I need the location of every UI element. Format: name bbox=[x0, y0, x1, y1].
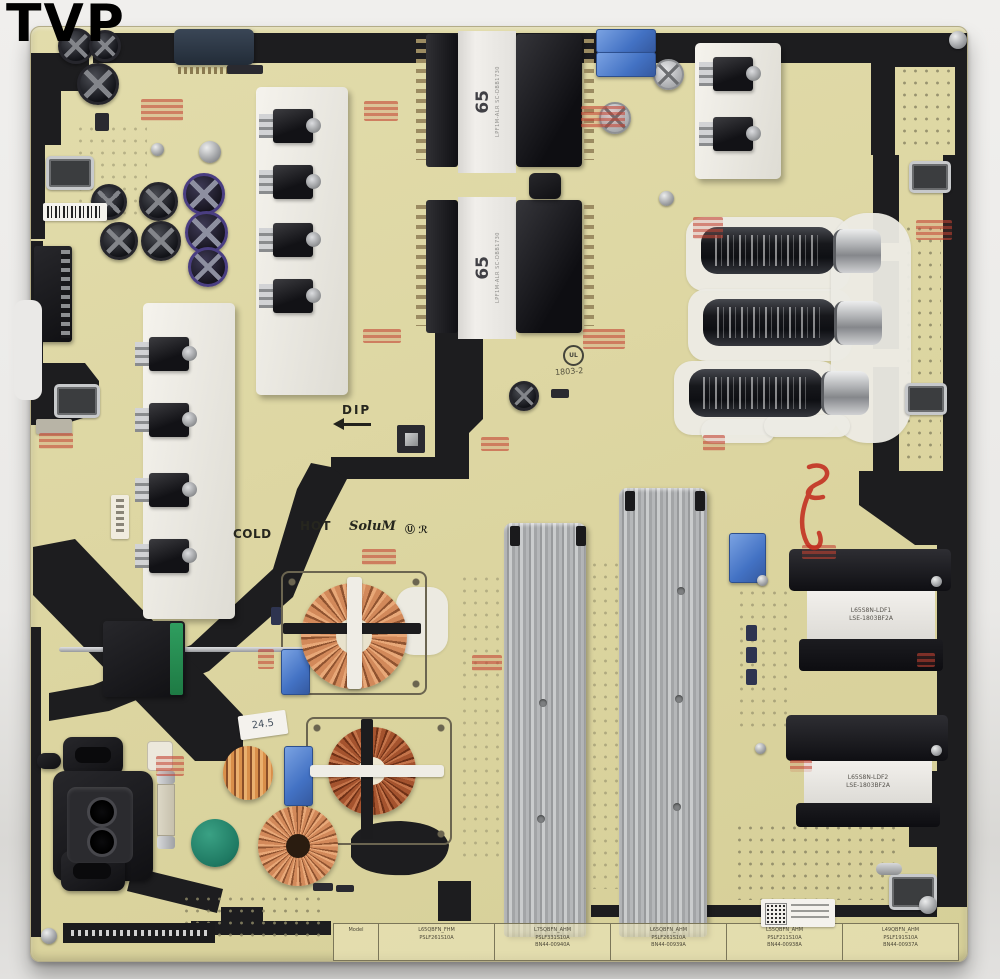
transformer-core bbox=[796, 803, 940, 827]
transformer-pins bbox=[584, 205, 594, 326]
watermark-text: TVP bbox=[6, 0, 126, 54]
qc-stamp bbox=[141, 99, 183, 121]
barcode-label bbox=[43, 203, 107, 221]
metal-clip bbox=[54, 384, 100, 418]
mounting-screw bbox=[949, 31, 967, 49]
electrolytic-capacitor bbox=[139, 182, 178, 221]
transistor-body bbox=[713, 57, 753, 91]
metal-clip bbox=[46, 156, 94, 190]
transistor-legs bbox=[259, 114, 273, 138]
transistor-body bbox=[149, 539, 189, 573]
metal-clip bbox=[909, 161, 951, 193]
sticker-text: 24.5 bbox=[251, 718, 275, 732]
qc-stamp bbox=[481, 437, 509, 451]
heatsink-hole bbox=[539, 699, 547, 707]
heatsink bbox=[619, 488, 707, 937]
optocoupler-window bbox=[405, 433, 418, 446]
ac-inlet-slot bbox=[75, 747, 111, 763]
date-stamp bbox=[111, 495, 129, 539]
capacitor-silver-end bbox=[834, 301, 882, 345]
component-column bbox=[736, 587, 792, 727]
qr-code bbox=[765, 903, 787, 925]
transformer-label-line: LSE-1803BF2A bbox=[846, 782, 890, 790]
film-capacitor-blue bbox=[596, 52, 656, 77]
mount-pad bbox=[659, 191, 674, 206]
gray-label bbox=[36, 419, 72, 434]
transformer-core bbox=[426, 34, 458, 167]
transformer-label-line: L65S8N-LDF2 bbox=[848, 774, 889, 782]
barcode bbox=[47, 206, 103, 218]
qc-stamp bbox=[364, 101, 398, 121]
filter-capacitor-horizontal bbox=[703, 299, 836, 346]
model-code: L75QBFN_AHM bbox=[495, 927, 610, 935]
transistor bbox=[135, 473, 193, 507]
heatsink-fin-tip bbox=[510, 526, 520, 546]
fuse-glass bbox=[157, 784, 175, 836]
table-cell: L75QBFN_AHM PSLF331S10A BN44-00940A bbox=[494, 924, 610, 960]
toroid-center bbox=[286, 834, 310, 858]
transistor-screw bbox=[182, 346, 197, 361]
connector-teeth bbox=[61, 250, 70, 338]
transistor-body bbox=[273, 223, 313, 257]
qc-stamp bbox=[39, 433, 73, 449]
stamp-marks bbox=[116, 499, 124, 535]
transformer-core bbox=[516, 200, 582, 333]
table-tag-cell: Model bbox=[334, 924, 378, 960]
glue-blob bbox=[764, 415, 850, 437]
qc-stamp bbox=[581, 106, 625, 128]
solder-pad-grid bbox=[899, 65, 955, 149]
smd-resistor bbox=[746, 625, 757, 641]
transistor-screw bbox=[182, 482, 197, 497]
transistor-legs bbox=[135, 342, 149, 366]
main-transformer: 65 LPF1M-ALR SC-DBB1730 bbox=[416, 31, 594, 173]
transistor-body bbox=[149, 337, 189, 371]
transformer-part-text: LPF1M-ALR SC-DBB1730 bbox=[495, 66, 501, 137]
transformer-pins bbox=[416, 205, 426, 326]
metal-clip bbox=[905, 383, 947, 415]
heatsink-hole bbox=[537, 815, 545, 823]
bn-code: BN44-00939A bbox=[611, 942, 726, 950]
component-column bbox=[589, 559, 619, 889]
transistor bbox=[135, 539, 193, 573]
qc-stamp bbox=[362, 549, 396, 565]
diode bbox=[313, 883, 333, 891]
signal-connector bbox=[174, 29, 254, 65]
transistor-legs bbox=[699, 122, 713, 146]
electrolytic-capacitor bbox=[100, 222, 138, 260]
qc-stamp bbox=[790, 760, 812, 772]
transformer-bobbin: 65 LPF1M-ALR SC-DBB1730 bbox=[458, 31, 516, 173]
transistor-legs bbox=[699, 62, 713, 86]
transistor-legs bbox=[259, 170, 273, 194]
transformer-number: 65 bbox=[473, 256, 493, 280]
heatsink-fin-tip bbox=[576, 526, 586, 546]
fuse-cap bbox=[157, 836, 175, 849]
cable-tie bbox=[347, 577, 362, 689]
small-transistor bbox=[95, 113, 109, 131]
bn-code: BN44-00938A bbox=[727, 942, 842, 950]
transistor bbox=[259, 109, 317, 143]
qc-stamp bbox=[583, 329, 625, 349]
qc-stamp bbox=[258, 649, 274, 669]
transistor-body bbox=[273, 279, 313, 313]
transistor-screw bbox=[746, 66, 761, 81]
filter-capacitor-horizontal bbox=[689, 369, 823, 417]
transformer-screw bbox=[931, 745, 942, 756]
board-edge-notch bbox=[14, 300, 42, 400]
ac-inlet-slot bbox=[73, 863, 111, 879]
transistor-body bbox=[713, 117, 753, 151]
transistor-screw bbox=[182, 412, 197, 427]
transistor-body bbox=[149, 473, 189, 507]
qc-stamp bbox=[363, 329, 401, 343]
green-thermistor-disc bbox=[191, 819, 239, 867]
brand-logo: SoluM bbox=[349, 519, 396, 534]
transistor-legs bbox=[259, 284, 273, 308]
transformer-pins bbox=[416, 39, 426, 160]
transformer-core bbox=[426, 200, 458, 333]
psu-code: PSLF261S10A bbox=[379, 935, 494, 943]
transistor bbox=[259, 279, 317, 313]
dip-arrow-head bbox=[333, 418, 344, 430]
ac-inlet-ear bbox=[63, 737, 123, 775]
silkscreen-text-strip bbox=[63, 923, 215, 943]
transformer-core bbox=[786, 715, 948, 761]
smd-resistor bbox=[271, 607, 281, 625]
diode bbox=[551, 389, 569, 398]
transformer-label-band: L65S8N-LDF1 LSE-1803BF2A bbox=[807, 591, 935, 639]
electrolytic-capacitor bbox=[141, 221, 181, 261]
mounting-screw bbox=[919, 896, 937, 914]
red-ink-mark bbox=[781, 459, 837, 559]
qc-stamp bbox=[472, 655, 502, 671]
transistor bbox=[259, 223, 317, 257]
optocoupler bbox=[397, 425, 425, 453]
bn-code: BN44-00940A bbox=[495, 942, 610, 950]
cable-tie bbox=[310, 765, 444, 777]
pcb-board: 65 LPF1M-ALR SC-DBB1730 65 LPF1M-ALR SC-… bbox=[30, 26, 968, 962]
transistor-screw bbox=[306, 174, 321, 189]
qc-stamp bbox=[156, 756, 184, 776]
small-toroid-choke bbox=[223, 746, 273, 800]
transformer-bobbin: 65 LPF1M-ALR SC-DBB1730 bbox=[458, 197, 516, 339]
bn-code: BN44-00937A bbox=[843, 942, 958, 950]
label-text-lines bbox=[791, 904, 829, 922]
ac-inlet-pin bbox=[37, 753, 61, 769]
transistor-legs bbox=[135, 544, 149, 568]
table-cell: L49QBFN_AHM PSLF191S10A BN44-00937A bbox=[842, 924, 958, 960]
transistor bbox=[259, 165, 317, 199]
ac-inlet-socket-hole bbox=[87, 827, 117, 857]
transistor bbox=[135, 337, 193, 371]
smd-resistor bbox=[746, 669, 757, 685]
model-code: L55QBFN_AHM bbox=[727, 927, 842, 935]
transformer-pins bbox=[584, 39, 594, 160]
qr-label bbox=[761, 899, 835, 927]
transistor-legs bbox=[135, 478, 149, 502]
transistor-body bbox=[273, 165, 313, 199]
electrolytic-capacitor bbox=[77, 63, 119, 105]
dip-arrow bbox=[343, 423, 371, 426]
mount-pad bbox=[199, 141, 221, 163]
transformer-screw bbox=[755, 743, 766, 754]
module-pcb-edge bbox=[170, 623, 183, 695]
transformer-label-band: L65S8N-LDF2 LSE-1803BF2A bbox=[804, 761, 932, 803]
transformer-part-text: LPF1M-ALR SC-DBB1730 bbox=[495, 232, 501, 303]
model-code: L65QBFN_FHM bbox=[379, 927, 494, 935]
ul-logo-text: UL bbox=[569, 352, 578, 359]
qc-stamp bbox=[703, 435, 725, 451]
transistor-screw bbox=[306, 232, 321, 247]
cold-label: COLD bbox=[233, 527, 272, 541]
transistor bbox=[699, 57, 757, 91]
heatsink-hole bbox=[673, 803, 681, 811]
heatsink-hole bbox=[675, 695, 683, 703]
heatsink-hole bbox=[677, 587, 685, 595]
capacitor-silver-end bbox=[833, 229, 881, 273]
dip-label: DIP bbox=[342, 403, 371, 417]
qc-stamp bbox=[917, 653, 935, 667]
transformer-number: 65 bbox=[473, 90, 493, 114]
smd-ic bbox=[227, 65, 263, 74]
film-capacitor-blue bbox=[596, 29, 656, 53]
transistor bbox=[135, 403, 193, 437]
choke-clamp-bar bbox=[361, 719, 373, 839]
transistor-screw bbox=[306, 118, 321, 133]
solder-pad-grid bbox=[734, 822, 896, 900]
transistor-body bbox=[273, 109, 313, 143]
transistor-legs bbox=[259, 228, 273, 252]
mounting-screw bbox=[41, 928, 57, 944]
photo-background: 65 LPF1M-ALR SC-DBB1730 65 LPF1M-ALR SC-… bbox=[0, 0, 1000, 979]
electrolytic-capacitor-purple bbox=[183, 173, 225, 215]
solder-blob bbox=[876, 863, 902, 875]
table-cell: L55QBFN_AHM PSLF211S10A BN44-00938A bbox=[726, 924, 842, 960]
hot-label: HOT bbox=[300, 519, 331, 533]
part-number-table: Model L65QBFN_FHM PSLF261S10A L75QBFN_AH… bbox=[333, 923, 959, 961]
main-transformer: 65 LPF1M-ALR SC-DBB1730 bbox=[416, 197, 594, 339]
transformer-label-line: LSE-1803BF2A bbox=[849, 615, 893, 623]
transformer-label-line: L65S8N-LDF1 bbox=[851, 607, 892, 615]
heatsink-fin-tip bbox=[625, 491, 635, 511]
psu-code: PSLF331S10A bbox=[495, 935, 610, 943]
transformer-core bbox=[516, 34, 582, 167]
smd-resistor bbox=[746, 647, 757, 663]
table-tag: Model bbox=[334, 927, 378, 935]
strip-text-marks bbox=[71, 930, 207, 936]
film-capacitor-blue bbox=[284, 746, 313, 806]
transistor-screw bbox=[306, 288, 321, 303]
transistor-screw bbox=[746, 126, 761, 141]
diode bbox=[336, 885, 354, 892]
qc-stamp bbox=[693, 217, 723, 239]
component-column bbox=[459, 573, 499, 863]
transistor-legs bbox=[135, 408, 149, 432]
transformer-screw bbox=[757, 575, 768, 586]
cert-marks: Ⓤ ℛ bbox=[405, 521, 428, 536]
psu-code: PSLF191S10A bbox=[843, 935, 958, 943]
inter-transformer-connector bbox=[529, 173, 561, 199]
electrolytic-capacitor-purple bbox=[188, 247, 228, 287]
qc-stamp bbox=[916, 220, 952, 240]
psu-code: PSLF261S10A bbox=[611, 935, 726, 943]
standoff-module bbox=[103, 621, 185, 697]
heatsink-fin-tip bbox=[695, 491, 705, 511]
ul-logo: UL bbox=[563, 345, 584, 366]
transformer-screw bbox=[931, 576, 942, 587]
transistor-screw bbox=[182, 548, 197, 563]
ac-inlet-socket-hole bbox=[87, 797, 117, 827]
electrolytic-capacitor-top bbox=[653, 59, 684, 90]
table-cell: L65QBFN_FHM PSLF261S10A bbox=[378, 924, 494, 960]
transistor-body bbox=[149, 403, 189, 437]
table-cell: L65QBFN_AHM PSLF261S10A BN44-00939A bbox=[610, 924, 726, 960]
mount-pad bbox=[151, 143, 164, 156]
transistor bbox=[699, 117, 757, 151]
heatsink bbox=[504, 523, 586, 937]
model-code: L49QBFN_AHM bbox=[843, 927, 958, 935]
psu-code: PSLF211S10A bbox=[727, 935, 842, 943]
capacitor-silver-end bbox=[821, 371, 869, 415]
model-code: L65QBFN_AHM bbox=[611, 927, 726, 935]
electrolytic-capacitor bbox=[509, 381, 539, 411]
